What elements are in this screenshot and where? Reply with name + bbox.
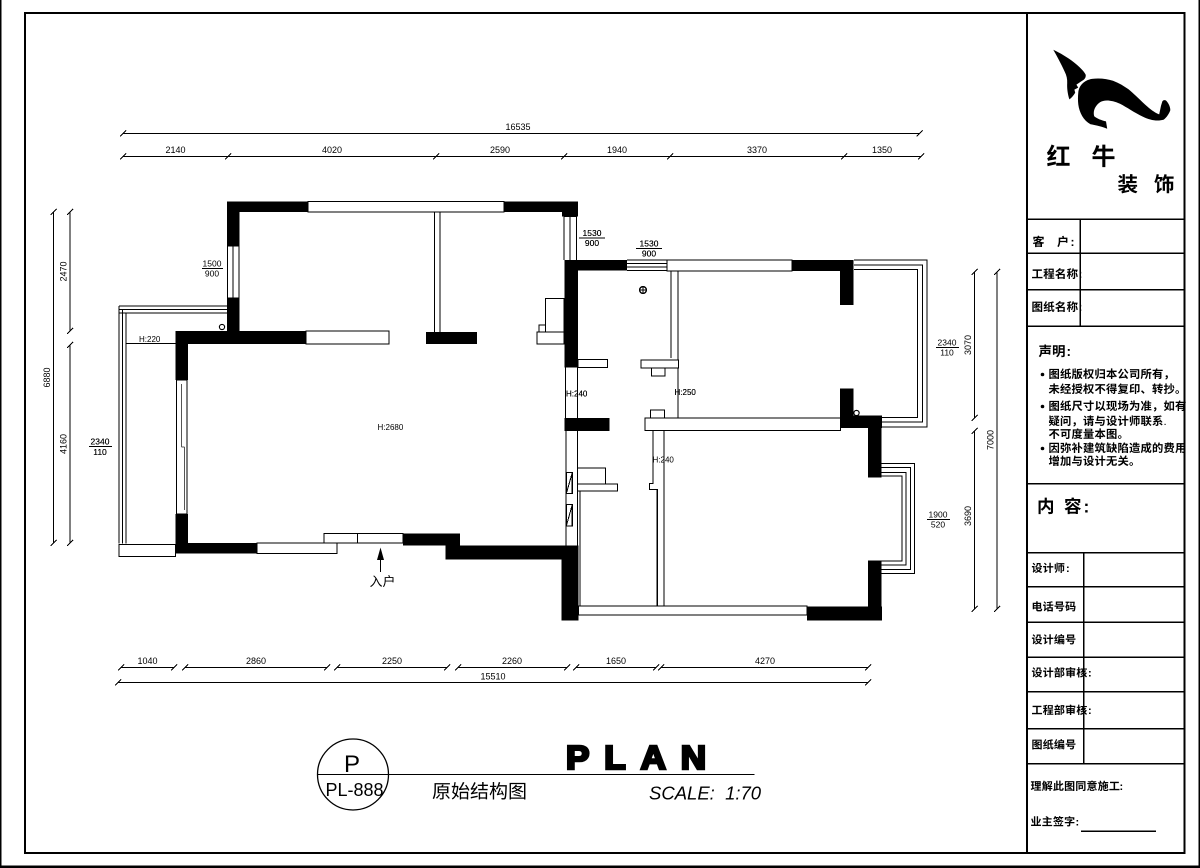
svg-text:3070: 3070 [963, 335, 973, 355]
svg-text:2250: 2250 [382, 656, 402, 666]
svg-text:900: 900 [642, 249, 656, 259]
svg-text:2860: 2860 [246, 656, 266, 666]
svg-text:3370: 3370 [747, 145, 767, 155]
svg-text::: : [1071, 235, 1075, 249]
svg-text::: : [1088, 668, 1092, 680]
svg-text:H:220: H:220 [139, 335, 161, 344]
svg-text:2140: 2140 [165, 145, 185, 155]
svg-text:2340: 2340 [91, 437, 110, 447]
svg-text:6880: 6880 [42, 367, 52, 387]
svg-text:4020: 4020 [322, 145, 342, 155]
svg-text:H:240: H:240 [653, 456, 675, 465]
svg-text:2590: 2590 [490, 145, 510, 155]
svg-text:900: 900 [585, 238, 599, 248]
svg-text:H:2680: H:2680 [378, 423, 404, 432]
svg-text:4270: 4270 [755, 656, 775, 666]
svg-text:1500: 1500 [203, 259, 222, 269]
svg-text:1530: 1530 [583, 228, 602, 238]
svg-text:1650: 1650 [606, 656, 626, 666]
svg-text:.: . [1164, 416, 1167, 428]
svg-text:15510: 15510 [480, 672, 505, 682]
svg-text:1350: 1350 [872, 145, 892, 155]
svg-text:PLAN: PLAN [566, 739, 721, 776]
svg-text::: : [1079, 302, 1083, 314]
svg-text::: : [1079, 269, 1083, 281]
svg-text:PL-888: PL-888 [325, 780, 383, 800]
svg-text:1940: 1940 [607, 145, 627, 155]
svg-text:SCALE: 1:70: SCALE: 1:70 [649, 783, 762, 804]
svg-text:1900: 1900 [929, 510, 948, 520]
svg-text:3690: 3690 [963, 506, 973, 526]
svg-text:110: 110 [940, 348, 954, 358]
svg-text:1040: 1040 [137, 656, 157, 666]
svg-text::: : [1088, 705, 1092, 717]
svg-text:110: 110 [93, 447, 107, 457]
svg-text:2260: 2260 [502, 656, 522, 666]
svg-text:1530: 1530 [640, 239, 659, 249]
svg-text:7000: 7000 [986, 430, 996, 450]
svg-text:2340: 2340 [938, 338, 957, 348]
svg-text::: : [1067, 344, 1072, 359]
svg-text::: : [1084, 497, 1090, 517]
svg-text:2470: 2470 [59, 261, 69, 281]
svg-text:16535: 16535 [505, 122, 530, 132]
svg-text::: : [1120, 781, 1124, 793]
svg-text:H:250: H:250 [675, 388, 697, 397]
svg-text::: : [1066, 563, 1070, 575]
svg-text:4160: 4160 [59, 434, 69, 454]
svg-text:520: 520 [931, 520, 945, 530]
svg-text:900: 900 [205, 269, 219, 279]
svg-text::: : [1076, 817, 1080, 829]
